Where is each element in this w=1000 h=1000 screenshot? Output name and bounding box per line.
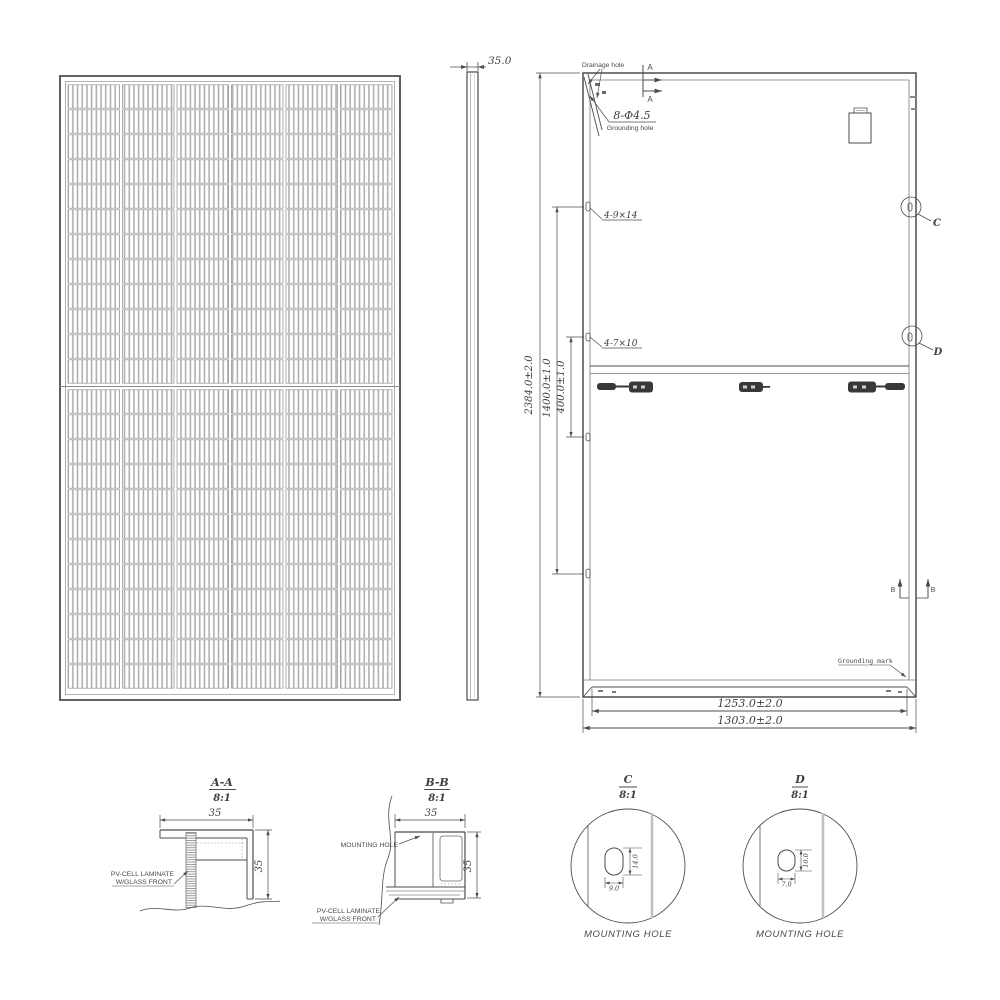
drawing-linework (590, 96, 609, 122)
pv-cell (232, 565, 284, 588)
grounding-hole-spec: 8-Φ4.5 (613, 109, 650, 122)
pv-cell (177, 565, 229, 588)
pv-cell (177, 310, 229, 333)
drawing-linework (743, 386, 747, 389)
pv-cell (341, 415, 393, 438)
pv-cell (123, 665, 175, 688)
pv-cell (232, 590, 284, 613)
pv-cell (232, 415, 284, 438)
pv-cell (286, 415, 338, 438)
pv-cell (232, 185, 284, 208)
dim-flange-width: 1253.0±2.0 (717, 697, 782, 710)
section-b-label-right: B (931, 587, 936, 594)
pv-cell (286, 310, 338, 333)
pv-cell (232, 615, 284, 638)
pv-cell (232, 665, 284, 688)
detail-aa: A-A 8:1 35 35 PV-CELL LAMINATE W/GLASS F… (111, 776, 280, 911)
pv-cell (68, 390, 120, 413)
break-line (140, 901, 280, 911)
pv-cell (286, 590, 338, 613)
pv-cell (286, 390, 338, 413)
detail-d-dim-width: 7.0 (781, 881, 791, 889)
pv-cell (232, 160, 284, 183)
drawing-linework (751, 386, 755, 389)
pv-cell (177, 110, 229, 133)
pv-cell (177, 335, 229, 358)
pv-cell (177, 465, 229, 488)
detail-bb-mounting-hole-label: MOUNTING HOLE (341, 842, 399, 849)
detail-bb-title: B-B (424, 776, 448, 789)
detail-bb-laminate-label-2: W/GLASS FRONT (320, 916, 376, 923)
drawing-linework (616, 386, 629, 388)
pv-cell (286, 540, 338, 563)
drawing-linework (907, 687, 916, 697)
pv-cell (286, 360, 338, 383)
detail-aa-laminate-label-2: W/GLASS FRONT (116, 879, 172, 886)
nameplate-label-box (849, 108, 871, 143)
connector-plug (885, 383, 905, 390)
pv-cell (123, 390, 175, 413)
pv-cell (123, 185, 175, 208)
pv-cell (286, 185, 338, 208)
dim-height: 2384.0±2.0 (524, 355, 535, 416)
drawing-linework (898, 691, 902, 693)
grounding-mark-label: Grounding mark (838, 657, 893, 665)
pv-cell (177, 390, 229, 413)
pv-cell (341, 440, 393, 463)
pv-cell (123, 235, 175, 258)
dim-mount-outer: 1400.0±1.0 (542, 358, 553, 418)
pv-cell (286, 490, 338, 513)
mounting-hole-slot (605, 848, 623, 875)
pv-cell (123, 85, 175, 108)
dim-mount-inner: 400.0±1.0 (556, 360, 567, 415)
pv-cell (123, 285, 175, 308)
pv-cell (232, 310, 284, 333)
pv-cell (341, 310, 393, 333)
section-a-label-top: A (647, 63, 653, 72)
detail-c-title: C (624, 773, 633, 786)
drawing-linework (461, 65, 467, 69)
section-b-label-left: B (891, 587, 896, 594)
vertical-dimensions: 2384.0±2.0 1400.0±1.0 400.0±1.0 (524, 73, 584, 697)
drawing-linework (763, 386, 770, 388)
pv-cell (177, 260, 229, 283)
pv-cell (123, 490, 175, 513)
pv-cell (286, 565, 338, 588)
pv-cell (341, 490, 393, 513)
horizontal-dimensions: 1253.0±2.0 1303.0±2.0 (583, 689, 916, 733)
connector-plug (597, 383, 616, 390)
drawing-linework (911, 108, 916, 110)
detail-c-ref: C (933, 218, 941, 229)
back-view: Drainage hole A A 8-Φ4.5 Grounding hole … (524, 62, 943, 733)
pv-cell (341, 185, 393, 208)
pv-cell (177, 665, 229, 688)
pv-cell (123, 310, 175, 333)
pv-cell (286, 665, 338, 688)
detail-d-dim-height: 10.0 (802, 853, 810, 867)
pv-cell (232, 465, 284, 488)
pv-cell (286, 440, 338, 463)
pv-cell (232, 210, 284, 233)
drawing-linework (849, 113, 871, 143)
drawing-linework (876, 386, 885, 388)
pv-cell (177, 160, 229, 183)
drawing-linework (918, 214, 931, 221)
pv-cell (232, 540, 284, 563)
pv-cell (68, 310, 120, 333)
side-view: 35.0 (450, 55, 512, 700)
pv-cell (341, 210, 393, 233)
detail-c-dim-height: 14.0 (632, 854, 640, 868)
grounding-hole-label: Grounding hole (607, 125, 654, 132)
pv-cell (341, 540, 393, 563)
detail-bb-dim-height: 35 (463, 860, 474, 873)
pv-cell (123, 515, 175, 538)
pv-cell (341, 260, 393, 283)
pv-cell (232, 440, 284, 463)
pv-cell (123, 640, 175, 663)
pv-cell (286, 515, 338, 538)
drawing-linework (886, 690, 891, 692)
detail-aa-dim-height: 35 (254, 860, 265, 873)
drawing-linework (399, 836, 420, 844)
pv-cell (68, 285, 120, 308)
pv-cell (286, 260, 338, 283)
pv-cell (286, 85, 338, 108)
pv-cell (68, 490, 120, 513)
pv-cell (68, 185, 120, 208)
pv-cell (123, 110, 175, 133)
pv-cell (341, 515, 393, 538)
pv-cell (68, 640, 120, 663)
detail-d-ref: D (933, 347, 943, 358)
pv-cell (341, 390, 393, 413)
pv-module-technical-drawing: 35.0 Drainage hole A A (0, 0, 1000, 1000)
pv-cell (232, 285, 284, 308)
pv-cell (286, 135, 338, 158)
side-view-profile (467, 72, 478, 700)
pv-cell (341, 135, 393, 158)
pv-cell (286, 210, 338, 233)
pv-cell (68, 615, 120, 638)
drawing-linework (862, 386, 866, 389)
frame-foot (441, 899, 453, 903)
drawing-linework (588, 69, 600, 84)
detail-c: C 8:1 14.0 9.0 MOUNTING HOLE (571, 773, 685, 940)
pv-cell (177, 440, 229, 463)
pv-cell (123, 160, 175, 183)
pv-cell (232, 490, 284, 513)
pv-cell (341, 110, 393, 133)
pv-cell (286, 615, 338, 638)
pv-cell (232, 515, 284, 538)
pv-cell (68, 360, 120, 383)
pv-cell (232, 360, 284, 383)
mounting-slot-9x14 (586, 202, 590, 211)
pv-cell (177, 185, 229, 208)
pv-cell (177, 210, 229, 233)
detail-d-scale: 8:1 (791, 790, 809, 801)
pv-cell (232, 85, 284, 108)
drawing-linework (910, 96, 916, 98)
pv-cell (123, 260, 175, 283)
pv-cell (341, 590, 393, 613)
pv-cell (123, 615, 175, 638)
pv-cell (123, 135, 175, 158)
pv-cell (341, 85, 393, 108)
pv-cell (286, 110, 338, 133)
pv-cell (286, 235, 338, 258)
pv-cell (177, 415, 229, 438)
drawing-linework (590, 337, 602, 347)
detail-d-caption: MOUNTING HOLE (756, 929, 844, 940)
pv-cell (341, 335, 393, 358)
pv-cell (68, 235, 120, 258)
pv-cell (177, 490, 229, 513)
detail-bb-scale: 8:1 (428, 793, 446, 804)
pv-cell (177, 85, 229, 108)
pv-cell (68, 440, 120, 463)
mounting-channel (440, 836, 462, 881)
drawing-linework (853, 386, 857, 389)
pv-cell (341, 665, 393, 688)
pv-cell (177, 285, 229, 308)
pv-cell (123, 590, 175, 613)
pv-cell (123, 465, 175, 488)
mounting-slot-7x10 (586, 333, 590, 341)
detail-aa-dim-width: 35 (209, 808, 222, 819)
pv-cell (232, 260, 284, 283)
slot-label-bottom: 4-7×10 (603, 339, 638, 349)
pv-cell (68, 515, 120, 538)
pv-cell (123, 565, 175, 588)
pv-cell (68, 665, 120, 688)
drawing-canvas: 35.0 Drainage hole A A (0, 0, 1000, 1000)
pv-cell (68, 260, 120, 283)
pv-cell (177, 640, 229, 663)
pv-cell (286, 160, 338, 183)
grounding-hole-mark (602, 91, 606, 94)
detail-d: D 8:1 10.0 7.0 MOUNTING HOLE (743, 773, 857, 940)
junction-boxes (597, 382, 905, 393)
pv-cell (68, 590, 120, 613)
pv-cell (232, 110, 284, 133)
detail-aa-title: A-A (210, 776, 233, 789)
pv-cell (123, 540, 175, 563)
drawing-linework (478, 65, 484, 69)
detail-aa-scale: 8:1 (213, 793, 231, 804)
pv-cell (123, 360, 175, 383)
pv-cell (177, 515, 229, 538)
pv-cell (177, 235, 229, 258)
pv-cell (341, 360, 393, 383)
pv-cell (177, 135, 229, 158)
drawing-linework (612, 691, 616, 693)
front-view (60, 76, 400, 700)
detail-d-title: D (794, 773, 805, 786)
pv-cell (68, 335, 120, 358)
pv-cell (286, 285, 338, 308)
pv-cell (341, 285, 393, 308)
drainage-hole-label: Drainage hole (582, 62, 625, 69)
pv-cell (68, 85, 120, 108)
pv-cell (341, 160, 393, 183)
detail-c-dim-width: 9.0 (609, 885, 619, 893)
drawing-linework (590, 208, 602, 219)
pv-cell (232, 335, 284, 358)
drawing-linework (583, 687, 592, 697)
side-thickness-dim: 35.0 (488, 55, 512, 67)
pv-cell (232, 390, 284, 413)
pv-cell (341, 565, 393, 588)
section-a-label-bottom: A (647, 95, 653, 104)
detail-aa-laminate-label-1: PV-CELL LAMINATE (111, 871, 175, 878)
pv-cell (177, 360, 229, 383)
drawing-linework (641, 386, 645, 389)
pv-cell (68, 540, 120, 563)
laminate-section (186, 833, 196, 908)
pv-cell (68, 465, 120, 488)
slot-label-top: 4-9×14 (603, 211, 638, 221)
pv-cell (232, 135, 284, 158)
pv-cell (232, 235, 284, 258)
pv-cell (123, 440, 175, 463)
drawing-linework (919, 343, 933, 350)
mounting-slot-7x10 (586, 433, 590, 441)
pv-cell (123, 210, 175, 233)
pv-cell (286, 465, 338, 488)
detail-c-scale: 8:1 (619, 790, 637, 801)
detail-c-caption: MOUNTING HOLE (584, 929, 672, 940)
drawing-linework (890, 665, 906, 677)
pv-cell (286, 335, 338, 358)
pv-cell (68, 160, 120, 183)
pv-cell (68, 415, 120, 438)
detail-bb-laminate-label-1: PV-CELL LAMINATE (317, 908, 381, 915)
dim-width: 1303.0±2.0 (717, 714, 782, 727)
pv-cell (68, 210, 120, 233)
pv-cell (68, 110, 120, 133)
pv-cell (68, 565, 120, 588)
pv-cell (341, 235, 393, 258)
section-b-marker: B B (891, 579, 936, 598)
pv-cell (68, 135, 120, 158)
mounting-hole-slot (778, 850, 795, 871)
detail-bb-dim-width: 35 (425, 808, 438, 819)
pv-cell (341, 465, 393, 488)
pv-cell (177, 615, 229, 638)
pv-cell (123, 335, 175, 358)
mounting-slot-9x14 (586, 569, 590, 578)
drawing-linework (598, 690, 603, 692)
pv-cell (177, 540, 229, 563)
pv-cell (341, 615, 393, 638)
pv-cell (177, 590, 229, 613)
section-a-marker: A A (643, 63, 662, 104)
pv-cell (286, 640, 338, 663)
pv-cell (232, 640, 284, 663)
pv-cell (341, 640, 393, 663)
detail-bb: B-B 8:1 35 MOUNTING HOLE 35 PV-CELL LAMI… (312, 776, 481, 925)
drawing-linework (633, 386, 637, 389)
pv-cell (123, 415, 175, 438)
